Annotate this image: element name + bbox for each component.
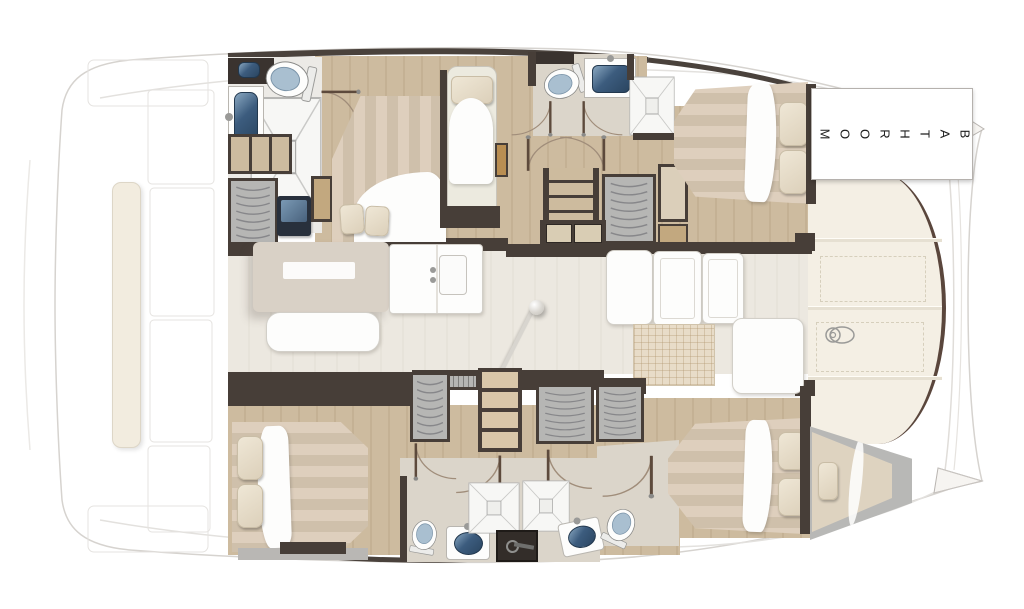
engine-hatch [496, 530, 538, 562]
hanging-locker [596, 384, 644, 442]
saloon-wall [228, 372, 414, 406]
grid-mat [633, 324, 715, 386]
table-inset [283, 262, 355, 279]
door-swing [598, 452, 656, 500]
saloon-table [253, 242, 389, 312]
hanging-locker [602, 174, 656, 244]
bench-seat [266, 312, 380, 352]
door-swing [508, 98, 554, 138]
bench-seat [732, 318, 804, 394]
vanity-sink [238, 62, 260, 78]
bow-deck [808, 172, 946, 444]
deck-seam [808, 238, 942, 242]
faucet [430, 267, 436, 273]
bathroom-label: BATHROOM [811, 88, 973, 180]
windlass-icon [822, 324, 856, 346]
hanging-locker [228, 178, 278, 246]
pillow [779, 102, 808, 146]
faucet [225, 113, 233, 121]
pillow [779, 150, 808, 194]
bath-wall [627, 54, 634, 80]
nightstand [311, 176, 333, 222]
duvet [449, 98, 493, 184]
hanging-locker [536, 384, 594, 444]
floor-plan-canvas: BATHROOM [0, 0, 1024, 609]
shelf-insert [574, 224, 602, 243]
galley-sink [439, 255, 467, 295]
bath-wall [633, 133, 677, 140]
cabinet [658, 224, 688, 244]
cabinet-unit [702, 253, 744, 324]
settee [606, 250, 653, 325]
mast-post [529, 300, 544, 315]
bathroom-label-text: BATHROOM [812, 127, 972, 142]
sink-basin [454, 532, 483, 555]
hull-edge [280, 542, 346, 554]
shelf-unit [478, 368, 522, 452]
pillow [237, 484, 263, 528]
pillow [364, 205, 390, 236]
shower [468, 482, 520, 534]
shelf-steps [228, 134, 292, 174]
pillow [339, 203, 365, 235]
faucet [607, 55, 614, 62]
tv-panel [277, 196, 311, 236]
door-swing [580, 98, 626, 138]
cabin-wall [440, 70, 447, 212]
cabin-wall [440, 206, 500, 228]
faucet [573, 517, 581, 525]
bow-hatch [820, 256, 926, 302]
deck-seam [808, 306, 942, 310]
hanging-locker [410, 372, 450, 442]
galley-counter [389, 244, 483, 314]
pillow [237, 436, 263, 480]
shelf-insert [546, 224, 572, 243]
settee [653, 251, 702, 326]
aft-bench [112, 182, 141, 448]
shower [629, 76, 675, 136]
sink-basin [592, 65, 630, 93]
bulkhead-wall [800, 386, 811, 534]
pillow [818, 462, 838, 500]
toilet [398, 513, 450, 560]
deck-seam [808, 376, 942, 380]
nightstand [495, 143, 508, 177]
